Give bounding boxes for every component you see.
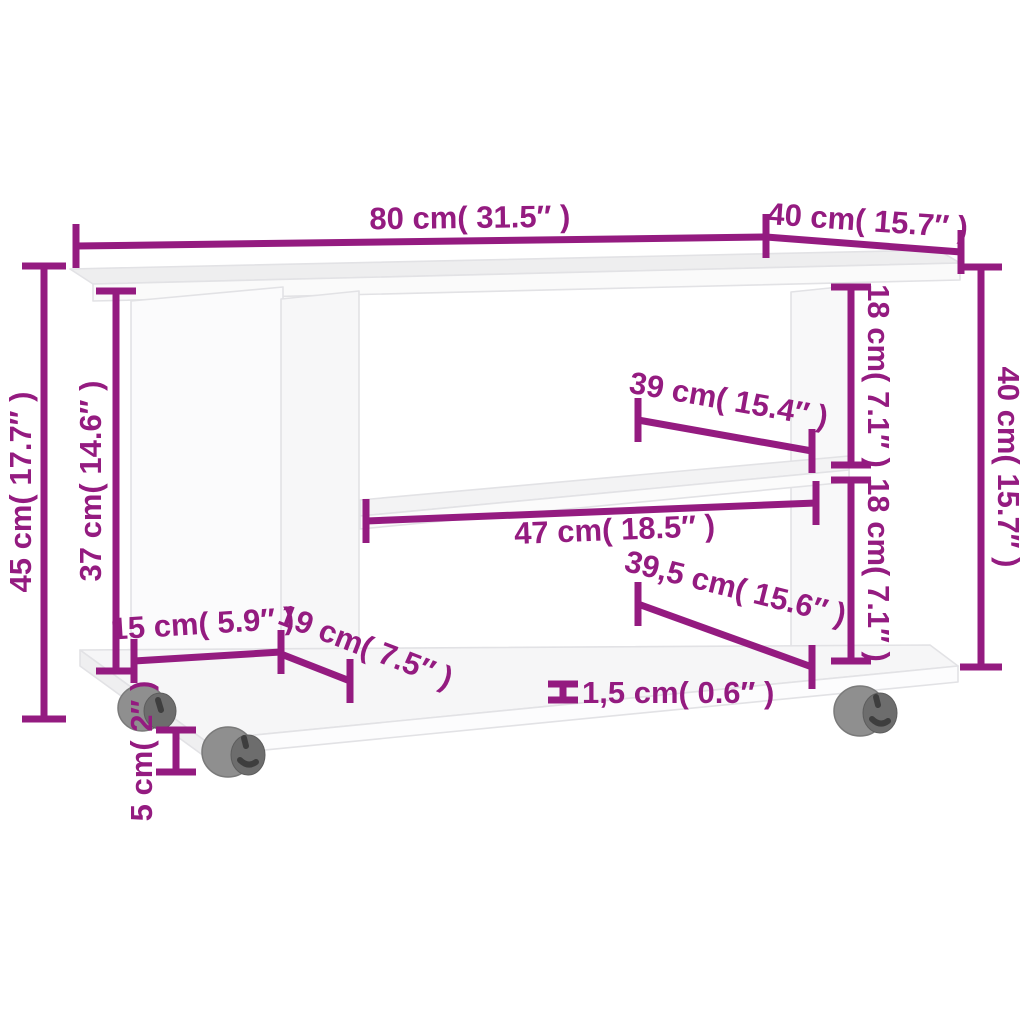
dim-label-caster-height: 5 cm( 2″ ) xyxy=(124,681,159,822)
dim-label-top-width: 80 cm( 31.5″ ) xyxy=(369,199,570,236)
dim-label-lower-right-height: 18 cm( 7.1″ ) xyxy=(861,478,896,662)
dim-label-right-height: 40 cm( 15.7″ ) xyxy=(991,367,1024,568)
dimension-overall-height: 45 cm( 17.7″ ) xyxy=(3,266,66,719)
dimension-board-thickness: 1,5 cm( 0.6″ ) xyxy=(548,675,774,710)
dimension-right-height: 40 cm( 15.7″ ) xyxy=(960,267,1024,667)
dim-label-inner-height: 37 cm( 14.6″ ) xyxy=(73,381,108,582)
dim-label-middle-span: 47 cm( 18.5″ ) xyxy=(513,508,715,551)
dim-label-overall-height: 45 cm( 17.7″ ) xyxy=(3,392,38,593)
dim-label-upper-right-height: 18 cm( 7.1″ ) xyxy=(861,284,896,468)
caster-wheel-right xyxy=(834,686,897,736)
dim-label-board-thickness: 1,5 cm( 0.6″ ) xyxy=(582,675,774,710)
product-dimension-diagram: 80 cm( 31.5″ ) 40 cm( 15.7″ ) 45 cm( 17.… xyxy=(0,0,1024,1024)
